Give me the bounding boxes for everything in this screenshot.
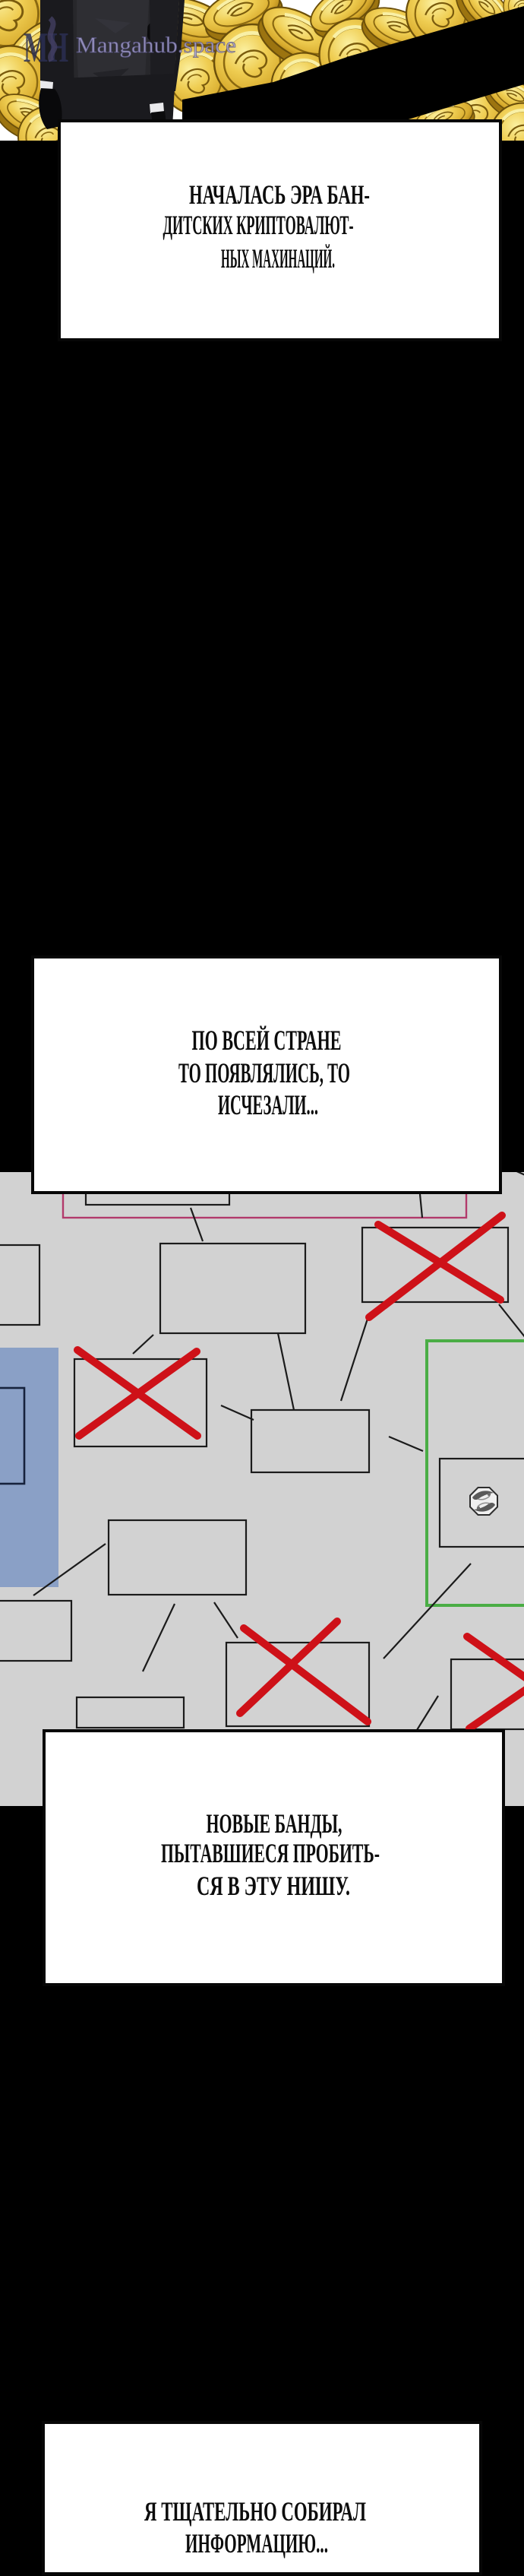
svg-text:ДИТСКИХ КРИПТОВАЛЮТ-: ДИТСКИХ КРИПТОВАЛЮТ- xyxy=(163,210,354,240)
svg-text:НЫХ МАХИНАЦИЙ.: НЫХ МАХИНАЦИЙ. xyxy=(221,243,335,274)
svg-text:СЯ В ЭТУ НИШУ.: СЯ В ЭТУ НИШУ. xyxy=(197,1871,350,1901)
svg-text:ИСЧЕЗАЛИ...: ИСЧЕЗАЛИ... xyxy=(218,1090,318,1121)
svg-text:Mangahub.space: Mangahub.space xyxy=(76,33,236,58)
svg-text:ТО ПОЯВЛЯЛИСЬ, ТО: ТО ПОЯВЛЯЛИСЬ, ТО xyxy=(178,1058,350,1089)
svg-text:MH: MH xyxy=(24,24,68,71)
svg-text:ИНФОРМАЦИЮ...: ИНФОРМАЦИЮ... xyxy=(185,2528,328,2559)
svg-text:ПО ВСЕЙ СТРАНЕ: ПО ВСЕЙ СТРАНЕ xyxy=(192,1025,342,1057)
svg-text:НОВЫЕ БАНДЫ,: НОВЫЕ БАНДЫ, xyxy=(207,1808,342,1839)
svg-text:ПЫТАВШИЕСЯ ПРОБИТЬ-: ПЫТАВШИЕСЯ ПРОБИТЬ- xyxy=(161,1838,380,1868)
svg-text:Я ТЩАТЕЛЬНО СОБИРАЛ: Я ТЩАТЕЛЬНО СОБИРАЛ xyxy=(144,2496,366,2527)
svg-text:НАЧАЛАСЬ ЭРА БАН-: НАЧАЛАСЬ ЭРА БАН- xyxy=(189,179,370,210)
